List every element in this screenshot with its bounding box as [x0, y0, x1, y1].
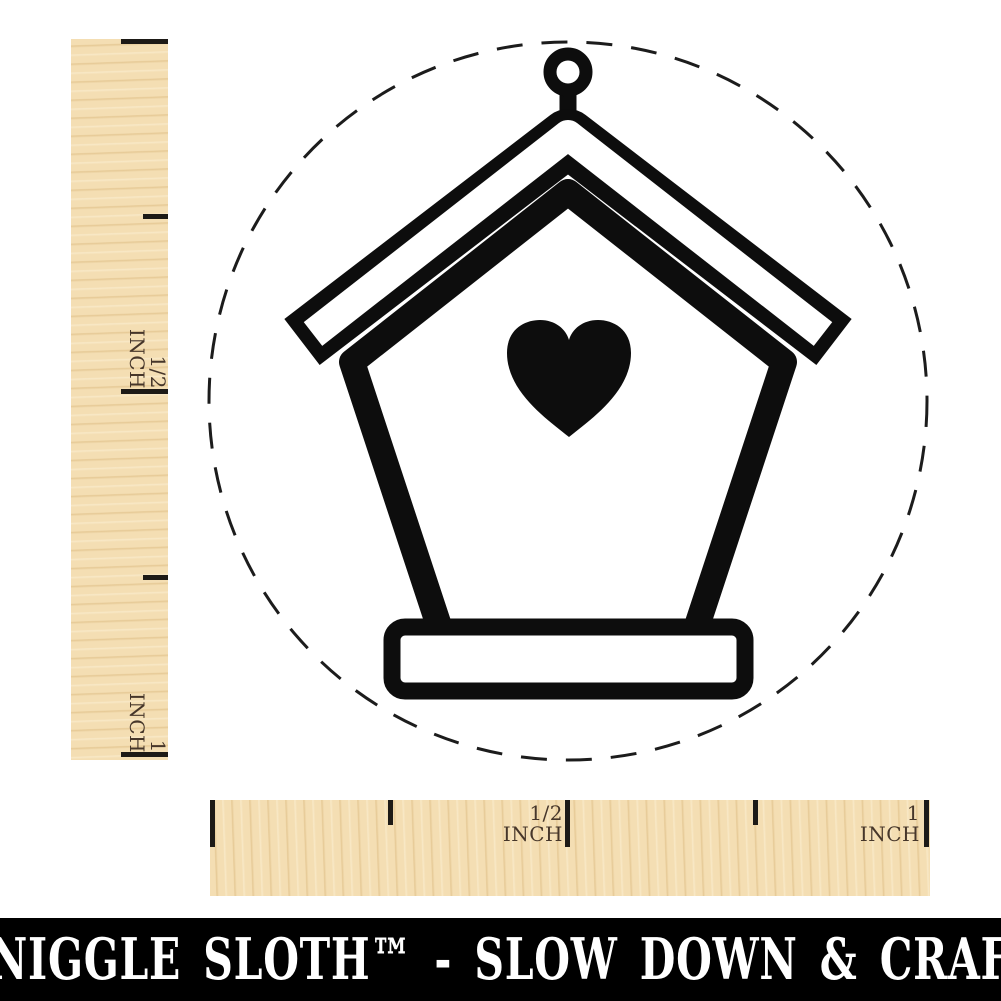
brand-tagline: SNIGGLE SLOTH™ - SLOW DOWN & CRAFT: [0, 926, 1001, 993]
brand-banner: SNIGGLE SLOTH™ - SLOW DOWN & CRAFT: [0, 918, 1001, 1001]
stamp-artwork: [0, 0, 1001, 1001]
birdhouse-heart-icon: [302, 54, 834, 691]
birdhouse-base: [392, 627, 745, 691]
stamp-product-image: 1/2 INCH 1 INCH 1/2 INCH 1 INCH: [0, 0, 1001, 1001]
birdhouse-hanging-ring-icon: [550, 54, 586, 90]
